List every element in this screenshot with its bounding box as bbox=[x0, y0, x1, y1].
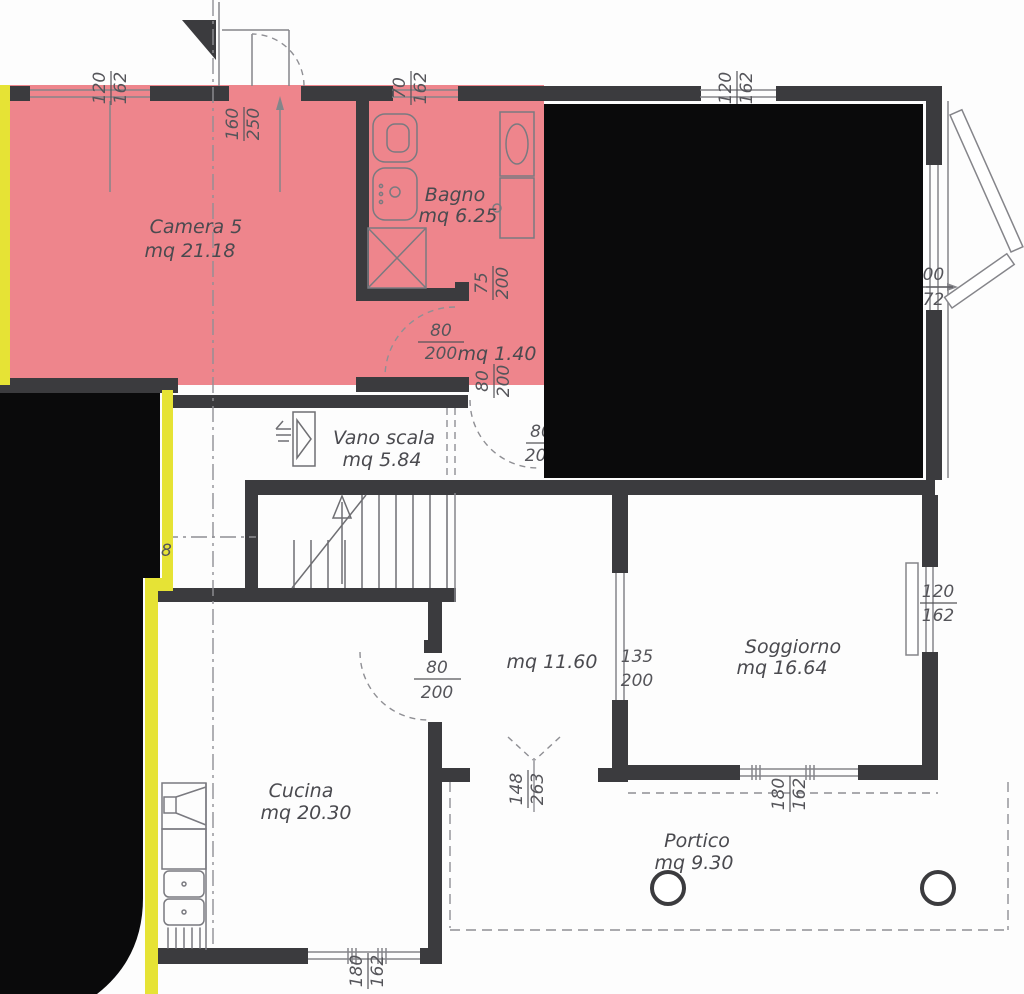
highlight-pink-camera-bagno bbox=[0, 85, 544, 385]
label-soggiorno: Soggiorno bbox=[745, 636, 841, 658]
label-vano-scala-area: mq 5.84 bbox=[343, 449, 422, 471]
svg-text:70: 70 bbox=[390, 77, 410, 99]
svg-text:160: 160 bbox=[223, 108, 243, 140]
north-triangle-mark bbox=[182, 20, 216, 60]
svg-text:180: 180 bbox=[769, 778, 789, 810]
label-vano-scala: Vano scala bbox=[333, 427, 435, 449]
staircase bbox=[292, 495, 447, 588]
floor-plan-drawing: Camera 5 mq 21.18 Bagno mq 6.25 Vano sca… bbox=[0, 0, 1024, 994]
electrical-panel-icon bbox=[276, 412, 315, 466]
redaction-box-center bbox=[544, 104, 923, 478]
sink-bowl-icon bbox=[164, 871, 204, 897]
dim-win-top-left: 120 162 bbox=[90, 71, 131, 105]
door-swing-entry bbox=[252, 34, 304, 86]
label-camera5: Camera 5 bbox=[150, 216, 243, 238]
dim-door-portico: 148 263 bbox=[507, 770, 548, 808]
wall-bagno-south bbox=[356, 288, 456, 301]
label-camera5-area: mq 21.18 bbox=[144, 240, 235, 262]
shutter-panel-icon bbox=[950, 110, 1023, 252]
wall-cucina-bottom bbox=[158, 948, 308, 964]
column-icon bbox=[652, 872, 684, 904]
label-soggiorno-area: mq 16.64 bbox=[736, 657, 827, 679]
svg-text:120: 120 bbox=[716, 72, 736, 104]
svg-text:162: 162 bbox=[922, 606, 954, 626]
wall-cucina-top bbox=[158, 588, 456, 602]
wall-soggiorno-left-upper bbox=[612, 495, 628, 573]
dim-opening-soggiorno: 135 200 bbox=[621, 647, 653, 691]
open-shutters bbox=[945, 110, 1023, 308]
kitchen-fixtures bbox=[162, 783, 206, 950]
shutter-panel-icon bbox=[945, 254, 1015, 308]
column-icon bbox=[922, 872, 954, 904]
svg-text:250: 250 bbox=[244, 108, 264, 140]
wall-soggiorno-top bbox=[245, 480, 935, 495]
svg-text:75: 75 bbox=[472, 272, 492, 294]
dim-door-cucina: 80 200 bbox=[414, 658, 461, 703]
wall-disimpegno-south bbox=[356, 377, 469, 392]
dim-door-top: 160 250 bbox=[223, 107, 264, 141]
svg-text:200: 200 bbox=[621, 671, 653, 691]
label-bagno: Bagno bbox=[425, 184, 485, 206]
redaction-box-left-upper bbox=[0, 393, 160, 578]
svg-text:148: 148 bbox=[507, 773, 527, 806]
floor-plan-page: Camera 5 mq 21.18 Bagno mq 6.25 Vano sca… bbox=[0, 0, 1024, 994]
french-door-leaf bbox=[535, 737, 560, 760]
svg-text:162: 162 bbox=[790, 778, 810, 810]
label-portico-area: mq 9.30 bbox=[655, 852, 734, 874]
svg-text:263: 263 bbox=[528, 773, 548, 805]
counter-icon bbox=[162, 829, 206, 869]
svg-text:80: 80 bbox=[426, 658, 448, 678]
portico-columns bbox=[652, 872, 954, 904]
svg-text:162: 162 bbox=[737, 72, 757, 104]
svg-text:180: 180 bbox=[347, 955, 367, 987]
wall-cucina-right bbox=[428, 722, 442, 964]
label-portico: Portico bbox=[664, 830, 730, 852]
svg-text:162: 162 bbox=[111, 72, 131, 104]
redaction-box-left-lower bbox=[0, 578, 143, 994]
dim-win-soggiorno-bottom: 180 162 bbox=[769, 776, 810, 812]
svg-text:80: 80 bbox=[430, 321, 452, 341]
svg-text:135: 135 bbox=[621, 647, 653, 667]
wall-vano-scala-top bbox=[172, 395, 468, 408]
wall-bagno-left bbox=[356, 101, 369, 301]
french-door-leaf bbox=[508, 737, 533, 760]
svg-text:80: 80 bbox=[473, 370, 493, 392]
svg-text:120: 120 bbox=[922, 582, 954, 602]
svg-text:200: 200 bbox=[425, 344, 457, 364]
dim-win-cucina: 180 162 bbox=[347, 953, 388, 989]
svg-text:200: 200 bbox=[493, 267, 513, 299]
wall-soggiorno-left-lower bbox=[612, 700, 628, 768]
label-cucina: Cucina bbox=[269, 780, 334, 802]
dim-win-top-right: 120 162 bbox=[716, 71, 757, 105]
sink-bowl-icon bbox=[164, 899, 204, 925]
svg-text:162: 162 bbox=[368, 955, 388, 987]
svg-text:200: 200 bbox=[421, 683, 453, 703]
label-corridoio-area: mq 11.60 bbox=[506, 651, 597, 673]
label-bagno-area: mq 6.25 bbox=[419, 205, 498, 227]
svg-text:162: 162 bbox=[411, 72, 431, 104]
door-swing-cucina bbox=[360, 652, 428, 720]
label-disimpegno-area: mq 1.40 bbox=[458, 343, 537, 365]
label-cucina-area: mq 20.30 bbox=[260, 802, 351, 824]
svg-text:200: 200 bbox=[494, 365, 514, 397]
dim-fragment-left: 8 bbox=[161, 541, 172, 561]
svg-text:120: 120 bbox=[90, 72, 110, 104]
